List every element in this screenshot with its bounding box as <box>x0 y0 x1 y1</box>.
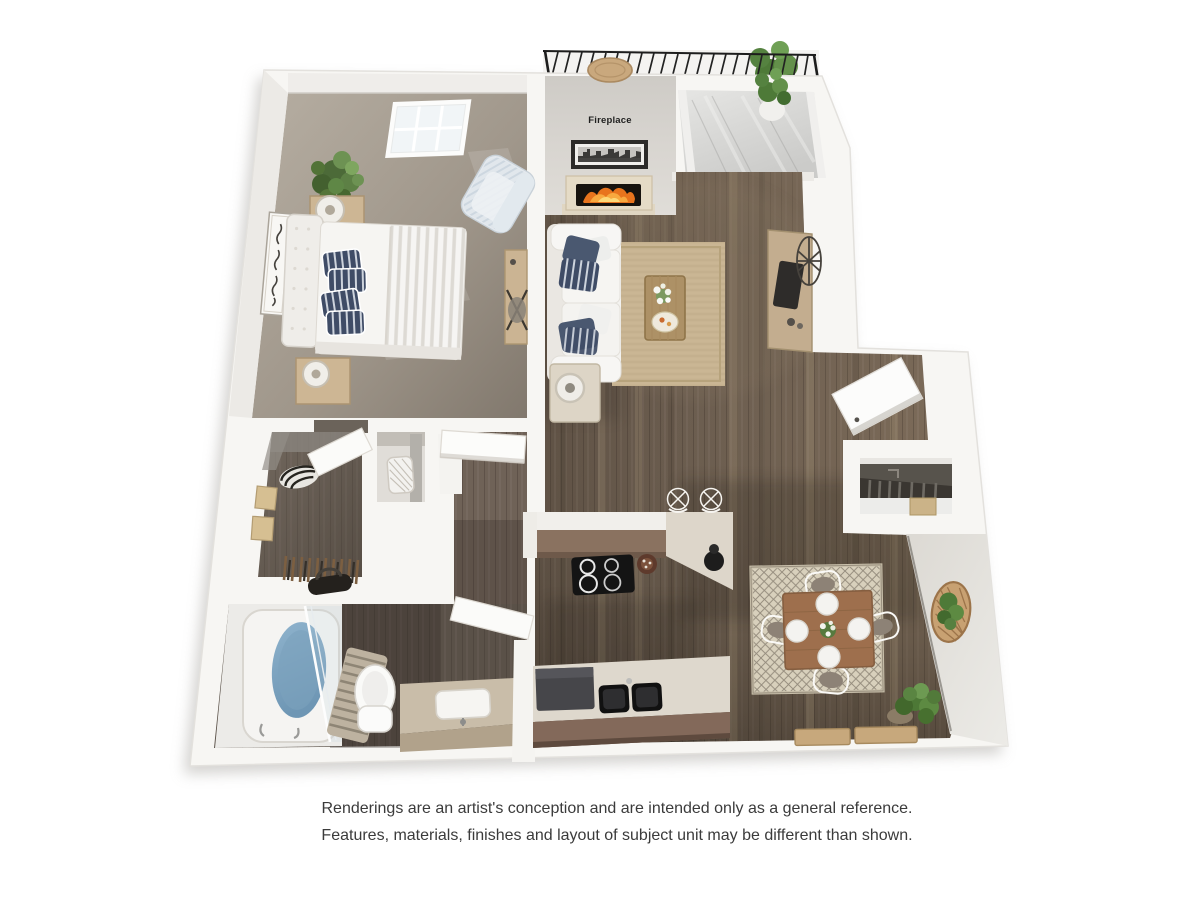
svg-text:Fireplace: Fireplace <box>588 115 632 126</box>
